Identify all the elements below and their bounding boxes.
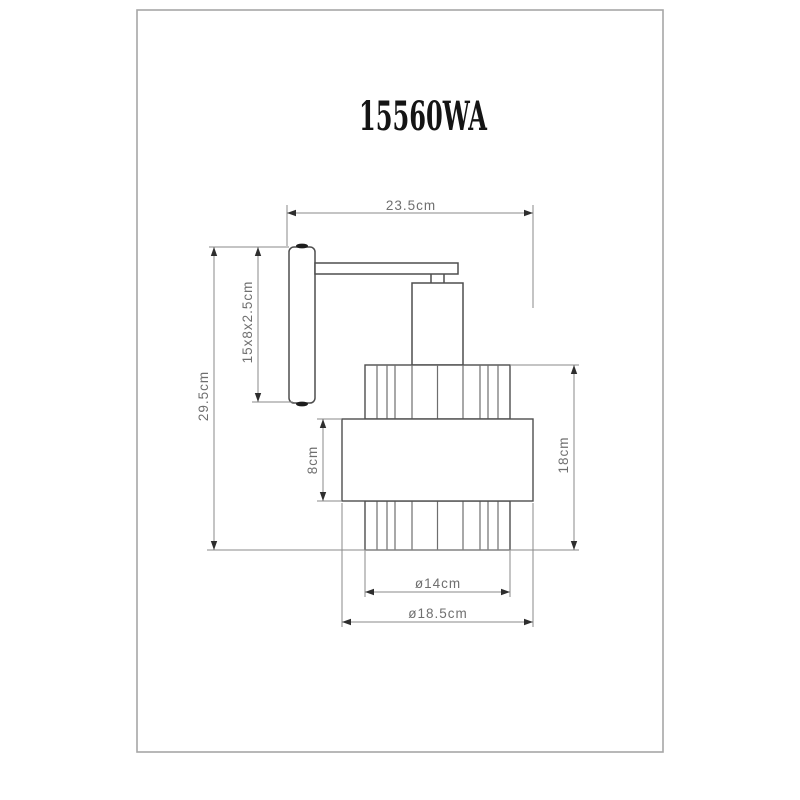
arrowhead-bottom [255, 393, 261, 402]
dim-inner-diameter: ø14cm [365, 551, 510, 597]
wall-plate [289, 247, 315, 403]
dim-label-band-height: 8cm [305, 446, 320, 475]
lamp-socket [412, 283, 463, 365]
page-title: 15560WA [359, 93, 488, 140]
dim-label-shade-height: 18cm [556, 436, 571, 473]
drawing-page: 15560WA [0, 0, 800, 800]
wall-plate-screw-top [296, 244, 308, 249]
dim-width: 23.5cm [287, 198, 533, 308]
shade-bottom-slats [377, 501, 498, 550]
dim-band-height: 8cm [305, 419, 342, 501]
arrowhead-left [342, 619, 351, 625]
socket-stem [431, 274, 444, 283]
mounting-arm [315, 263, 458, 274]
lamp-shade [342, 365, 533, 550]
dim-label-outer-diameter: ø18.5cm [408, 606, 468, 621]
arrowhead-top [571, 365, 577, 374]
dim-backplate: 15x8x2.5cm [240, 247, 293, 402]
dim-label-total-height: 29.5cm [196, 371, 211, 421]
wall-plate-screw-bottom [296, 402, 308, 407]
dim-label-backplate: 15x8x2.5cm [240, 281, 255, 364]
arrowhead-top [255, 247, 261, 256]
shade-middle-band [342, 419, 533, 501]
arrowhead-right [524, 210, 533, 216]
arrowhead-right [524, 619, 533, 625]
dim-label-width: 23.5cm [386, 198, 436, 213]
technical-drawing: 15560WA [0, 0, 800, 800]
arrowhead-left [287, 210, 296, 216]
shade-top-slats [377, 365, 498, 419]
arrowhead-left [365, 589, 374, 595]
arrowhead-top [320, 419, 326, 428]
arrowhead-bottom [571, 541, 577, 550]
dim-label-inner-diameter: ø14cm [415, 576, 461, 591]
arrowhead-top [211, 247, 217, 256]
arrowhead-bottom [320, 492, 326, 501]
arrowhead-bottom [211, 541, 217, 550]
arrowhead-right [501, 589, 510, 595]
